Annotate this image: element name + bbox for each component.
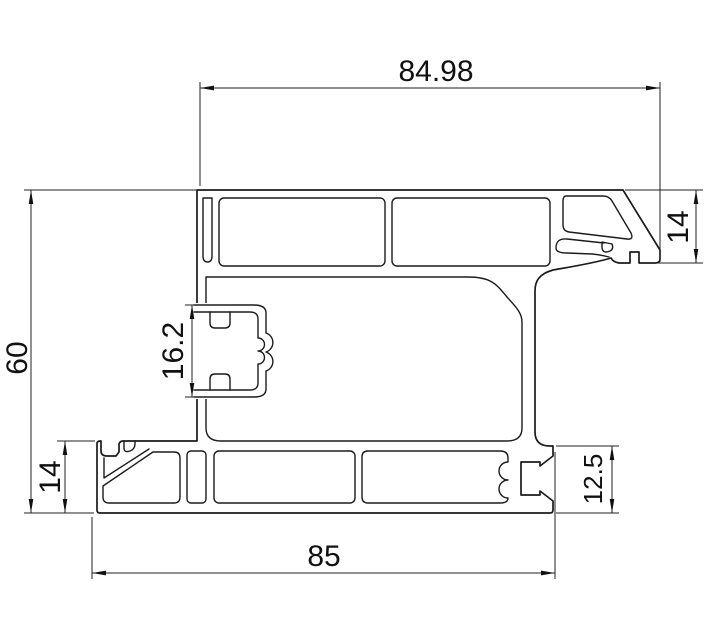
dim-foot-height-label: 14 (34, 460, 67, 493)
dim-right-end-height-label: 12.5 (578, 454, 608, 505)
dim-right-edge-height-label: 14 (662, 210, 695, 243)
hardware-channel-recess (193, 303, 289, 399)
dim-left-height-label: 60 (1, 341, 34, 374)
dim-bottom-width-label: 85 (307, 540, 340, 573)
arrowhead-left (92, 571, 106, 576)
arrowhead-right (646, 86, 660, 91)
arrowhead-bottom (29, 499, 34, 513)
arrowhead-left (200, 86, 214, 91)
arrowhead-right (541, 571, 555, 576)
arrowhead-top (694, 190, 699, 204)
arrowhead-top (63, 441, 68, 455)
profile-cross-section-drawing: 84.98 60 16.2 14 (0, 0, 706, 621)
arrowhead-bottom (63, 499, 68, 513)
dim-foot-height: 14 (34, 441, 95, 513)
dim-top-width-label: 84.98 (398, 55, 473, 88)
arrowhead-top (29, 190, 34, 204)
arrowhead-bottom (610, 499, 615, 513)
drawing-canvas: 84.98 60 16.2 14 (0, 0, 706, 621)
dim-right-end-height: 12.5 (556, 446, 619, 513)
arrowhead-bottom (694, 249, 699, 263)
dim-groove-height-label: 16.2 (157, 322, 190, 380)
arrowhead-top (610, 446, 615, 460)
